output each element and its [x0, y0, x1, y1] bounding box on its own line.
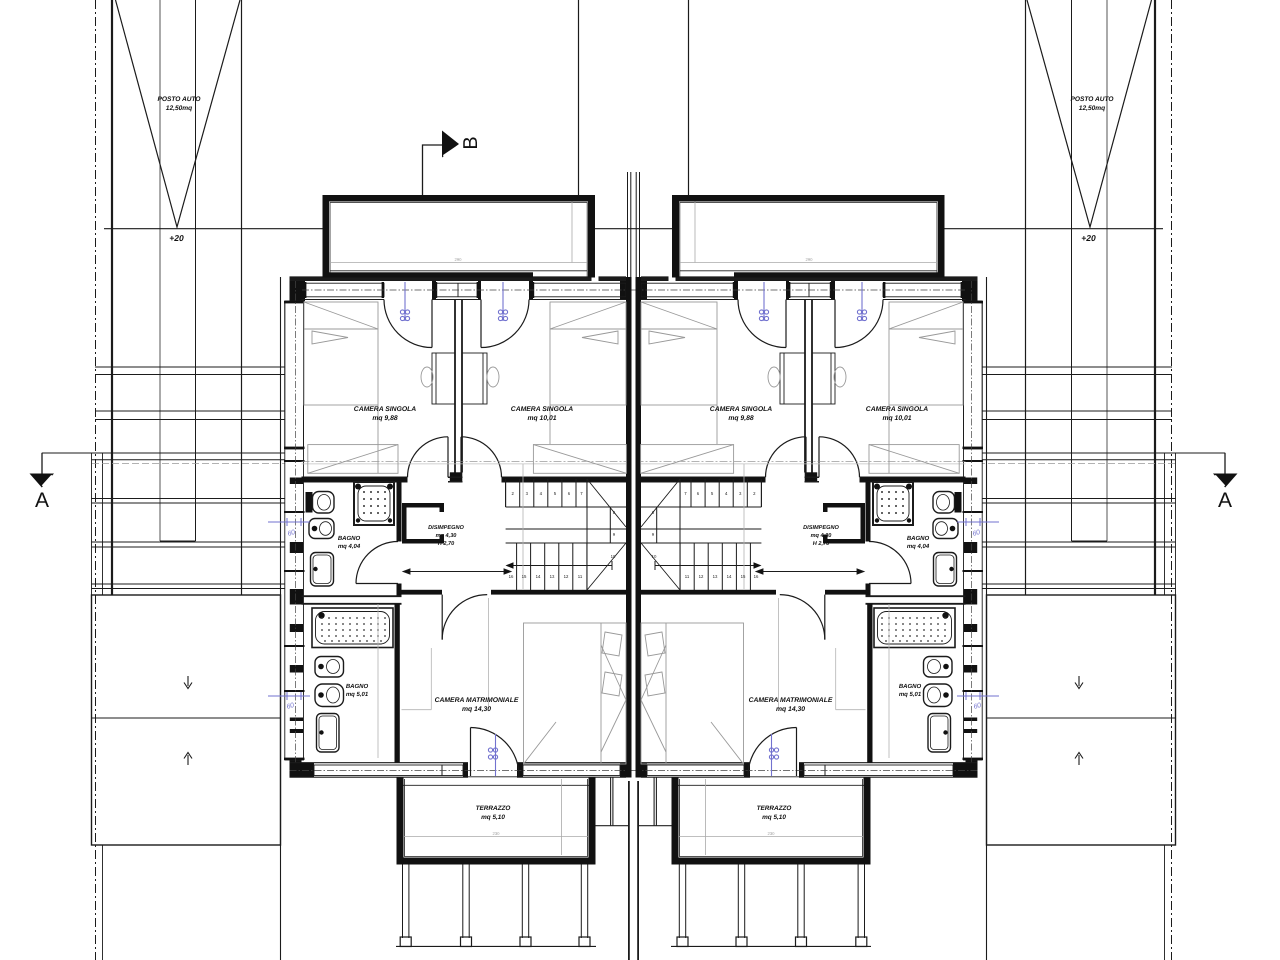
svg-text:mq 14,30: mq 14,30: [462, 706, 491, 713]
svg-text:DISIMPEGNO: DISIMPEGNO: [428, 525, 464, 531]
svg-text:POSTO AUTO: POSTO AUTO: [1070, 96, 1114, 103]
svg-text:12: 12: [564, 574, 569, 579]
svg-text:290: 290: [806, 257, 814, 262]
svg-text:A: A: [1218, 489, 1232, 512]
svg-text:mq 4,30: mq 4,30: [811, 533, 833, 539]
svg-text:16: 16: [754, 574, 759, 579]
svg-text:15: 15: [522, 574, 527, 579]
svg-text:16: 16: [509, 574, 514, 579]
svg-text:mq 9,88: mq 9,88: [728, 415, 754, 422]
svg-text:mq 4,04: mq 4,04: [338, 543, 361, 550]
svg-text:11: 11: [578, 574, 583, 579]
svg-text:mq 5,10: mq 5,10: [762, 814, 786, 821]
svg-text:H 2,70: H 2,70: [438, 541, 455, 547]
svg-text:B: B: [460, 136, 482, 149]
svg-text:mq 9,88: mq 9,88: [372, 415, 398, 422]
svg-text:BAGNO: BAGNO: [899, 683, 922, 690]
svg-text:CAMERA MATRIMONIALE: CAMERA MATRIMONIALE: [749, 697, 833, 704]
svg-text:CAMERA SINGOLA: CAMERA SINGOLA: [866, 406, 929, 413]
svg-text:TERRAZZO: TERRAZZO: [757, 805, 792, 812]
svg-text:CAMERA SINGOLA: CAMERA SINGOLA: [710, 406, 773, 413]
svg-text:230: 230: [768, 831, 776, 836]
svg-text:13: 13: [713, 574, 718, 579]
svg-text:BAGNO: BAGNO: [346, 683, 369, 690]
svg-text:H 2,70: H 2,70: [813, 541, 830, 547]
svg-text:POSTO AUTO: POSTO AUTO: [157, 96, 201, 103]
svg-text:+20: +20: [1081, 233, 1096, 243]
svg-text:12,50mq: 12,50mq: [166, 105, 192, 112]
svg-text:mq 4,04: mq 4,04: [907, 543, 930, 550]
svg-text:mq 14,30: mq 14,30: [776, 706, 805, 713]
svg-text:mq 5,10: mq 5,10: [481, 814, 505, 821]
svg-text:BAGNO: BAGNO: [338, 535, 361, 542]
svg-text:TERRAZZO: TERRAZZO: [476, 805, 511, 812]
svg-text:A: A: [35, 489, 49, 512]
svg-text:15: 15: [741, 574, 746, 579]
svg-text:CAMERA SINGOLA: CAMERA SINGOLA: [354, 406, 417, 413]
svg-text:mq 10,01: mq 10,01: [527, 415, 556, 422]
svg-text:+20: +20: [169, 233, 184, 243]
svg-text:mq 10,01: mq 10,01: [882, 415, 911, 422]
svg-text:12,50mq: 12,50mq: [1079, 105, 1105, 112]
svg-text:CAMERA SINGOLA: CAMERA SINGOLA: [511, 406, 574, 413]
svg-text:mq 5,01: mq 5,01: [346, 691, 369, 698]
svg-text:14: 14: [727, 574, 732, 579]
svg-text:11: 11: [685, 574, 690, 579]
svg-text:230: 230: [493, 831, 501, 836]
svg-text:14: 14: [536, 574, 541, 579]
svg-text:290: 290: [455, 257, 463, 262]
svg-text:12: 12: [699, 574, 704, 579]
svg-text:mq 5,01: mq 5,01: [899, 691, 922, 698]
svg-text:mq 4,30: mq 4,30: [436, 533, 458, 539]
svg-text:10: 10: [611, 554, 616, 559]
svg-text:BAGNO: BAGNO: [907, 535, 930, 542]
svg-text:13: 13: [550, 574, 555, 579]
svg-text:CAMERA MATRIMONIALE: CAMERA MATRIMONIALE: [435, 697, 519, 704]
svg-text:10: 10: [652, 554, 657, 559]
svg-text:DISIMPEGNO: DISIMPEGNO: [803, 525, 839, 531]
